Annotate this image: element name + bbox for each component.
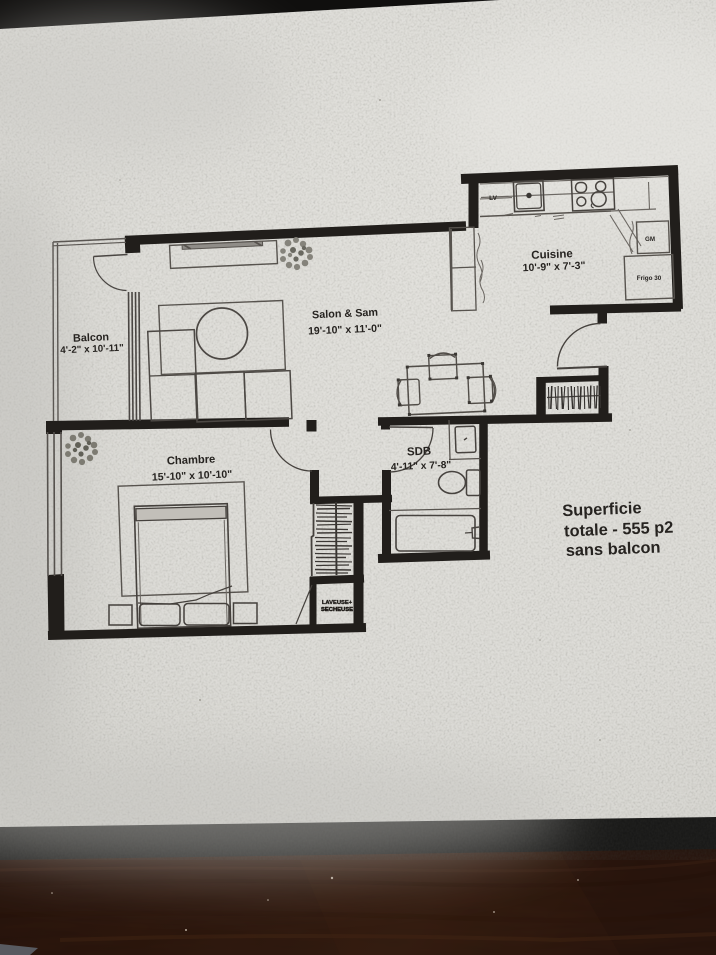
- svg-text:LV: LV: [489, 195, 497, 202]
- svg-text:10'-9" x 7'-3": 10'-9" x 7'-3": [522, 260, 585, 275]
- svg-text:Frigo 30: Frigo 30: [637, 275, 662, 282]
- svg-text:Chambre: Chambre: [167, 454, 216, 468]
- svg-text:Superficie: Superficie: [562, 499, 642, 520]
- svg-text:SDB: SDB: [407, 446, 432, 459]
- svg-text:GM: GM: [645, 236, 655, 243]
- svg-text:SECHEUSE: SECHEUSE: [321, 607, 353, 613]
- svg-text:sans balcon: sans balcon: [565, 539, 660, 560]
- svg-text:LAVEUSE+: LAVEUSE+: [322, 600, 353, 606]
